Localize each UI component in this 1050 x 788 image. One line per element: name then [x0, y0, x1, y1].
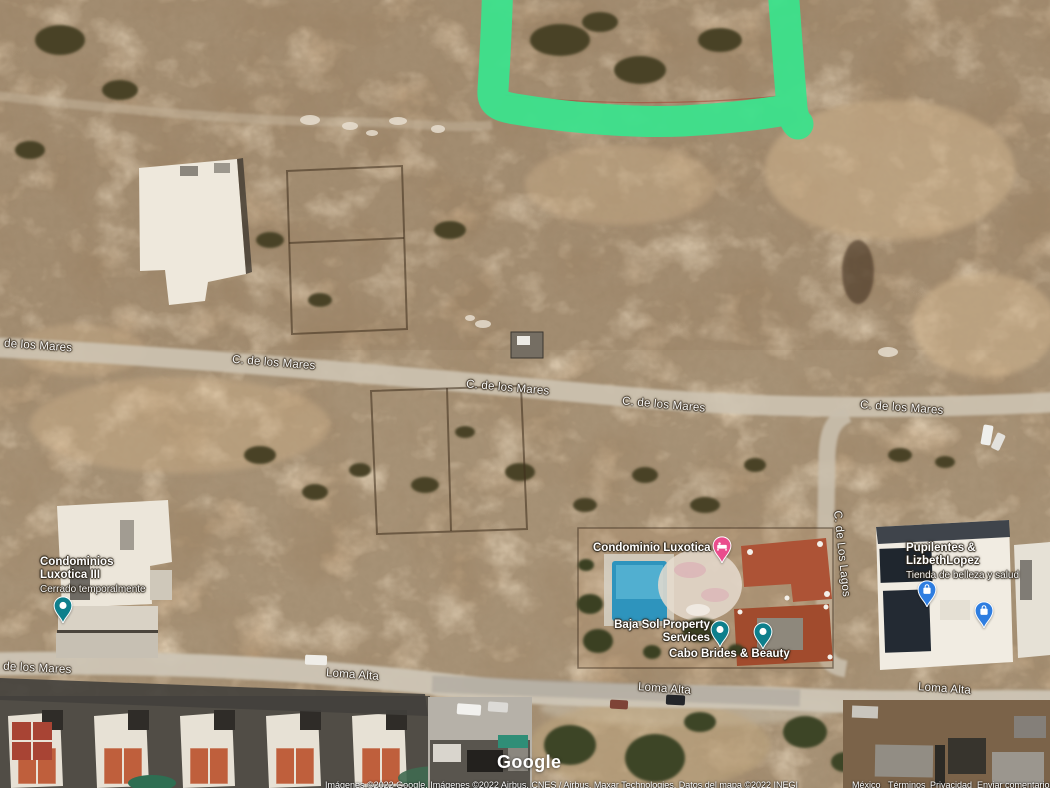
bottom-right-lot — [843, 700, 1050, 788]
housing-row — [0, 678, 478, 788]
place-label-condominio-luxotica-ii[interactable]: Condominio Luxotica II — [593, 542, 720, 555]
pin-place-cabo-brides-beauty[interactable] — [753, 622, 773, 650]
footer-link-region[interactable]: México — [852, 780, 881, 788]
place-status: Cerrado temporalmente — [40, 583, 160, 596]
place-label-pupilentes-lizbethlopez[interactable]: Pupilentes & LizbethLopez Tienda de bell… — [906, 542, 990, 582]
place-name: Pupilentes & LizbethLopez — [906, 542, 990, 568]
pin-place-baja-sol-property-services[interactable] — [710, 620, 730, 648]
pin-shopping-pupilentes[interactable] — [917, 580, 937, 608]
satellite-map-viewport[interactable]: de los Mares C. de los Mares C. de los M… — [0, 0, 1050, 788]
place-dot-icon — [759, 628, 766, 635]
footer-link-terms[interactable]: Términos — [888, 780, 926, 788]
place-dot-icon — [716, 626, 723, 633]
place-label-baja-sol-property-services[interactable]: Baja Sol Property Services — [608, 619, 710, 645]
map-attribution: Imágenes ©2022 Google, Imágenes ©2022 Ai… — [325, 780, 798, 788]
place-name: Condominios Luxotica III — [40, 556, 160, 582]
pin-shopping-secondary[interactable] — [974, 601, 994, 629]
footer-link-feedback[interactable]: Enviar comentarios — [977, 780, 1050, 788]
place-label-condominios-luxotica-iii[interactable]: Condominios Luxotica III Cerrado tempora… — [40, 556, 160, 596]
google-logo[interactable]: Google — [497, 752, 561, 773]
shed — [511, 332, 543, 358]
pin-lodging-condominio-luxotica-ii[interactable] — [712, 536, 732, 564]
place-dot-icon — [59, 602, 66, 609]
footer-link-privacy[interactable]: Privacidad — [930, 780, 972, 788]
pin-place-condominios-luxotica-iii[interactable] — [53, 596, 73, 624]
